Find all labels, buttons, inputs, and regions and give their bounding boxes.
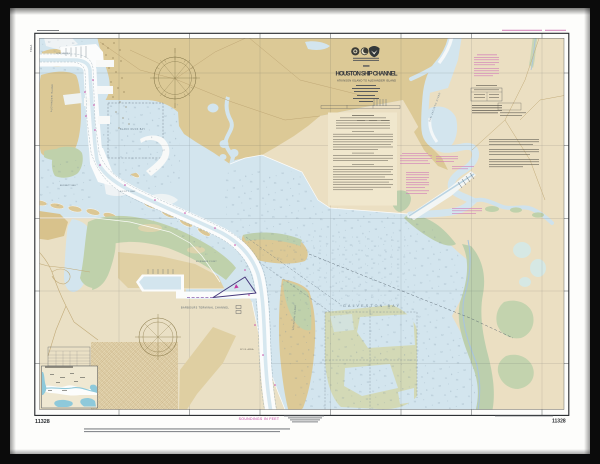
svg-text:BURNETT BAY: BURNETT BAY (60, 184, 76, 187)
svg-text:SOUNDINGS IN FEET: SOUNDINGS IN FEET (239, 417, 280, 421)
svg-text:HOUSTON SHIP CHANNEL: HOUSTON SHIP CHANNEL (336, 71, 398, 77)
svg-text:BLACK DUCK BAY: BLACK DUCK BAY (120, 128, 145, 131)
svg-text:MORGANS POINT: MORGANS POINT (196, 260, 217, 263)
svg-text:SPOIL AREA: SPOIL AREA (240, 348, 254, 351)
svg-text:ATKINSON ISLAND TO ALEXANDER I: ATKINSON ISLAND TO ALEXANDER ISLAND (337, 78, 396, 82)
svg-text:LYNCHBURG: LYNCHBURG (56, 53, 70, 55)
svg-text:BARBOURS TERMINAL CHANNEL: BARBOURS TERMINAL CHANNEL (181, 307, 229, 310)
svg-text:GALVESTON BAY: GALVESTON BAY (343, 304, 401, 308)
svg-text:SCOTT BAY: SCOTT BAY (120, 190, 136, 193)
svg-text:11328: 11328 (552, 419, 566, 425)
svg-text:TX/LA: TX/LA (29, 45, 33, 52)
svg-text:11328: 11328 (35, 419, 50, 425)
